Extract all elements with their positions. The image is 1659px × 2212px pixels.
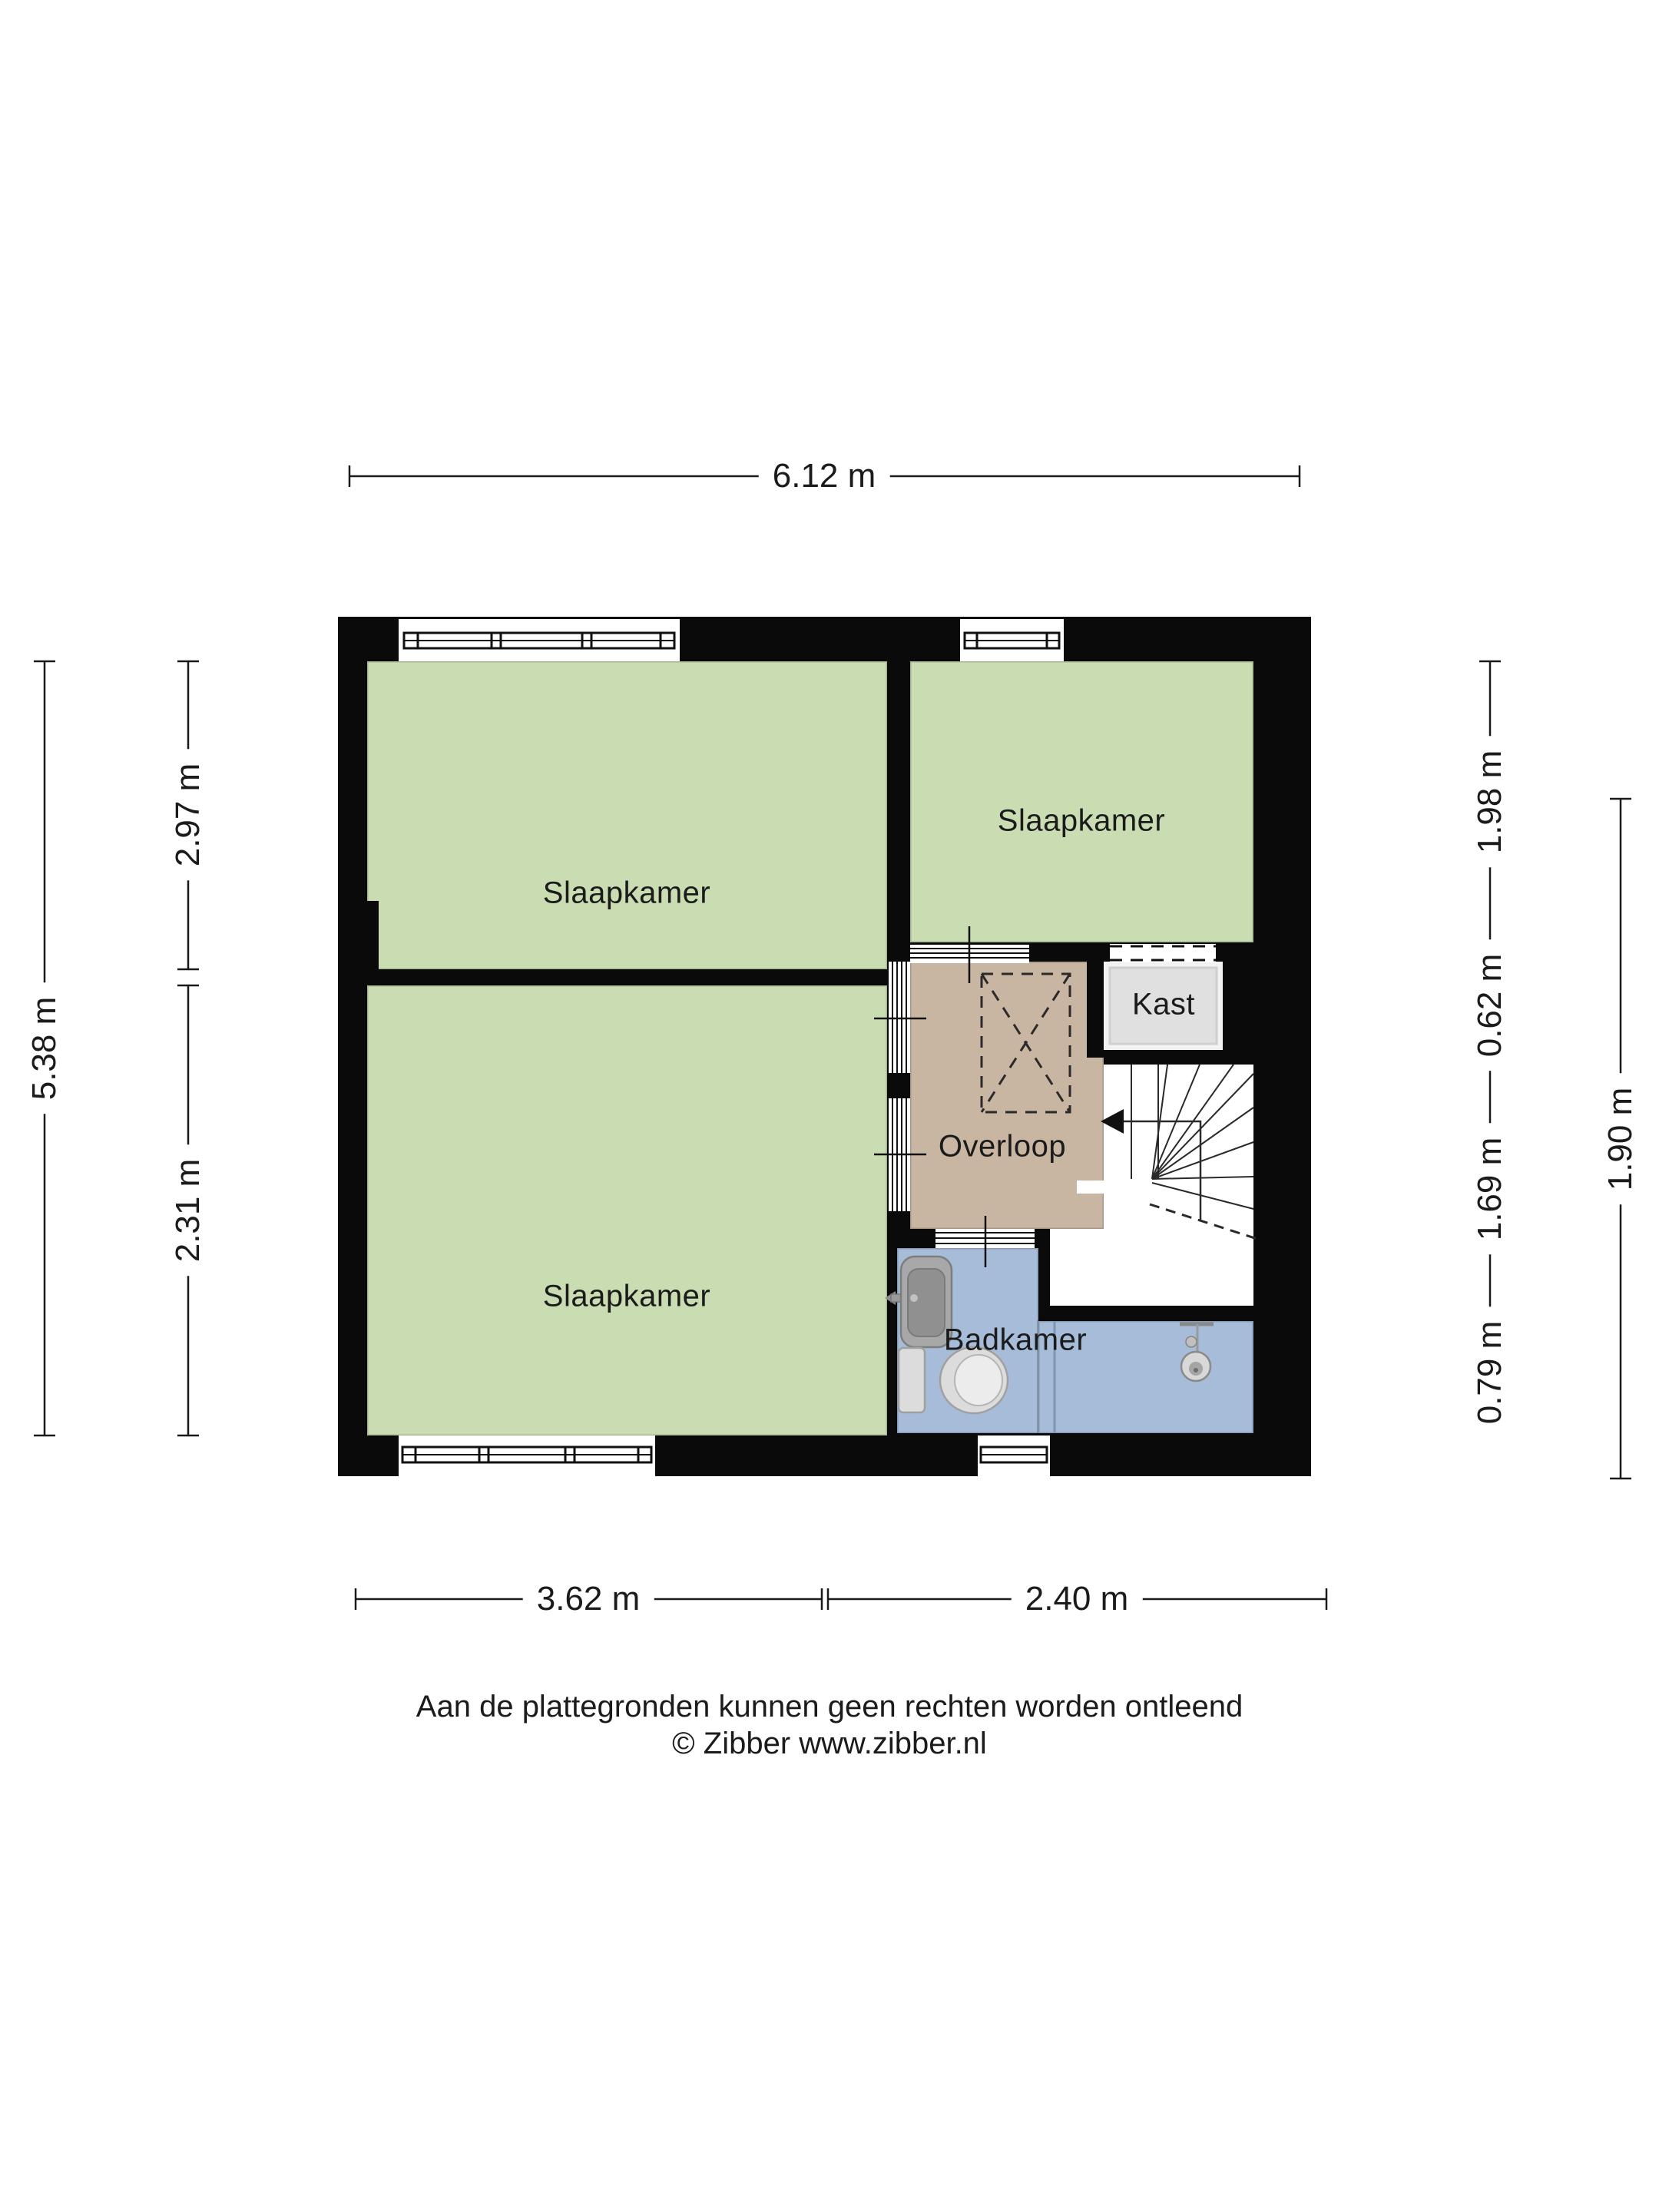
disclaimer-text: Aan de plattegronden kunnen geen rechten…: [416, 1690, 1243, 1724]
room-landing: [910, 962, 1104, 1229]
dim-left-inner-top: 2.97 m: [167, 750, 209, 881]
room-bedroom-top-left: [367, 661, 887, 969]
stair-landing: [1050, 1229, 1104, 1306]
left-wall-pillar: [338, 901, 379, 985]
room-label-bathroom: Badkamer: [944, 1323, 1087, 1358]
window-top-right: [960, 619, 1064, 661]
room-label-bedroom-bottom-left: Slaapkamer: [543, 1280, 710, 1314]
stair-entry-step: [1077, 1181, 1131, 1194]
window-top-left: [399, 619, 680, 661]
dim-right-2: 0.62 m: [1469, 940, 1511, 1071]
room-bedroom-top-right: [910, 661, 1253, 942]
room-label-landing: Overloop: [939, 1130, 1066, 1164]
dim-left-inner-bottom: 2.31 m: [167, 1145, 209, 1277]
floor-plan-canvas: [0, 0, 1659, 2212]
floor-plan-page: 6.12 m 5.38 m 2.97 m 2.31 m 1.98 m 0.62 …: [0, 0, 1659, 2212]
room-label-bedroom-top-right: Slaapkamer: [998, 804, 1165, 839]
dim-bottom-left: 3.62 m: [523, 1578, 654, 1620]
dim-top: 6.12 m: [759, 455, 890, 497]
window-bathroom: [978, 1435, 1050, 1476]
room-label-closet: Kast: [1132, 988, 1195, 1022]
copyright-text: © Zibber www.zibber.nl: [672, 1727, 987, 1761]
dim-bottom-right: 2.40 m: [1012, 1578, 1143, 1620]
room-label-bedroom-top-left: Slaapkamer: [543, 876, 710, 911]
closet-left-wall: [1087, 962, 1104, 1058]
dim-left-outer: 5.38 m: [24, 983, 65, 1114]
dim-right-1: 1.98 m: [1469, 737, 1511, 868]
window-bottom-left: [399, 1435, 655, 1476]
room-bedroom-bottom-left: [367, 985, 887, 1435]
door-opening-closet: [1110, 944, 1216, 962]
dim-right-outer: 1.90 m: [1600, 1074, 1641, 1205]
dim-right-3: 1.69 m: [1469, 1124, 1511, 1255]
dim-right-4: 0.79 m: [1469, 1307, 1511, 1439]
